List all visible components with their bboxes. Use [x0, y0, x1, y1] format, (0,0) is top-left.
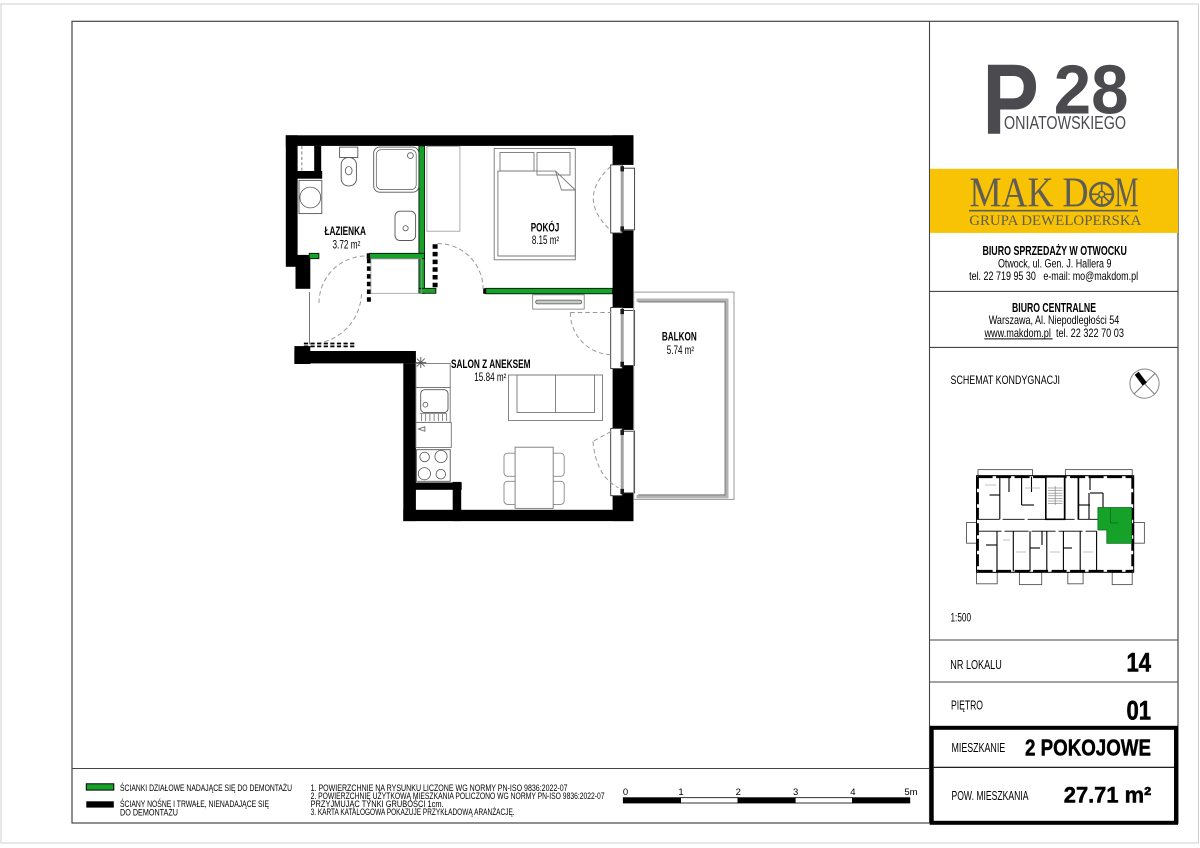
svg-text:DO DEMONTAŻU: DO DEMONTAŻU: [120, 807, 178, 817]
svg-text:14: 14: [1127, 648, 1152, 678]
svg-text:POKÓJ: POKÓJ: [531, 220, 560, 235]
svg-text:PIĘTRO: PIĘTRO: [951, 698, 983, 713]
svg-text:5m: 5m: [904, 787, 917, 798]
svg-text:SCHEMAT KONDYGNACJI: SCHEMAT KONDYGNACJI: [951, 373, 1061, 387]
svg-text:ŁAZIENKA: ŁAZIENKA: [324, 224, 366, 238]
svg-text:15.84 m²: 15.84 m²: [474, 371, 506, 384]
svg-text:MAK D: MAK D: [970, 170, 1089, 216]
svg-text:2 POKOJOWE: 2 POKOJOWE: [1025, 735, 1151, 761]
svg-text:M: M: [1115, 170, 1139, 216]
svg-text:2: 2: [736, 787, 741, 798]
svg-text:ŚCIANKI DZIAŁOWE NADAJĄCE SIĘ: ŚCIANKI DZIAŁOWE NADAJĄCE SIĘ DO DEMONTA…: [120, 782, 292, 793]
svg-text:01: 01: [1127, 696, 1152, 726]
svg-text:0: 0: [623, 787, 628, 798]
svg-text:NR LOKALU: NR LOKALU: [950, 657, 1002, 672]
svg-text:8.15 m²: 8.15 m²: [532, 234, 559, 247]
svg-text:3: 3: [793, 787, 798, 798]
svg-text:27.71 m²: 27.71 m²: [1064, 782, 1152, 807]
svg-text:GRUPA DEWELOPERSKA: GRUPA DEWELOPERSKA: [969, 212, 1141, 229]
svg-text:5.74 m²: 5.74 m²: [667, 344, 694, 357]
svg-text:3. KARTA KATALOGOWA POKAZUJE P: 3. KARTA KATALOGOWA POKAZUJE PRZYKŁADOWĄ…: [311, 807, 515, 817]
svg-text:P: P: [982, 43, 1039, 155]
svg-text:4: 4: [850, 787, 855, 798]
svg-text:SALON Z ANEKSEM: SALON Z ANEKSEM: [451, 357, 531, 371]
svg-text:BALKON: BALKON: [662, 329, 697, 343]
svg-text:www.makdom.pl tel. 22 322 70: www.makdom.pl tel. 22 322 70 03: [984, 326, 1125, 340]
svg-text:MIESZKANIE: MIESZKANIE: [952, 740, 1006, 755]
svg-text:1: 1: [678, 787, 683, 798]
svg-text:tel. 22 719 95 30 e-mail: mo: tel. 22 719 95 30 e-mail: mo@makdom.pl: [969, 269, 1138, 283]
svg-text:ONIATOWSKIEGO: ONIATOWSKIEGO: [1004, 113, 1126, 133]
svg-text:POW. MIESZKANIA: POW. MIESZKANIA: [952, 788, 1029, 803]
svg-text:3.72 m²: 3.72 m²: [333, 239, 361, 252]
svg-text:1:500: 1:500: [951, 610, 972, 624]
